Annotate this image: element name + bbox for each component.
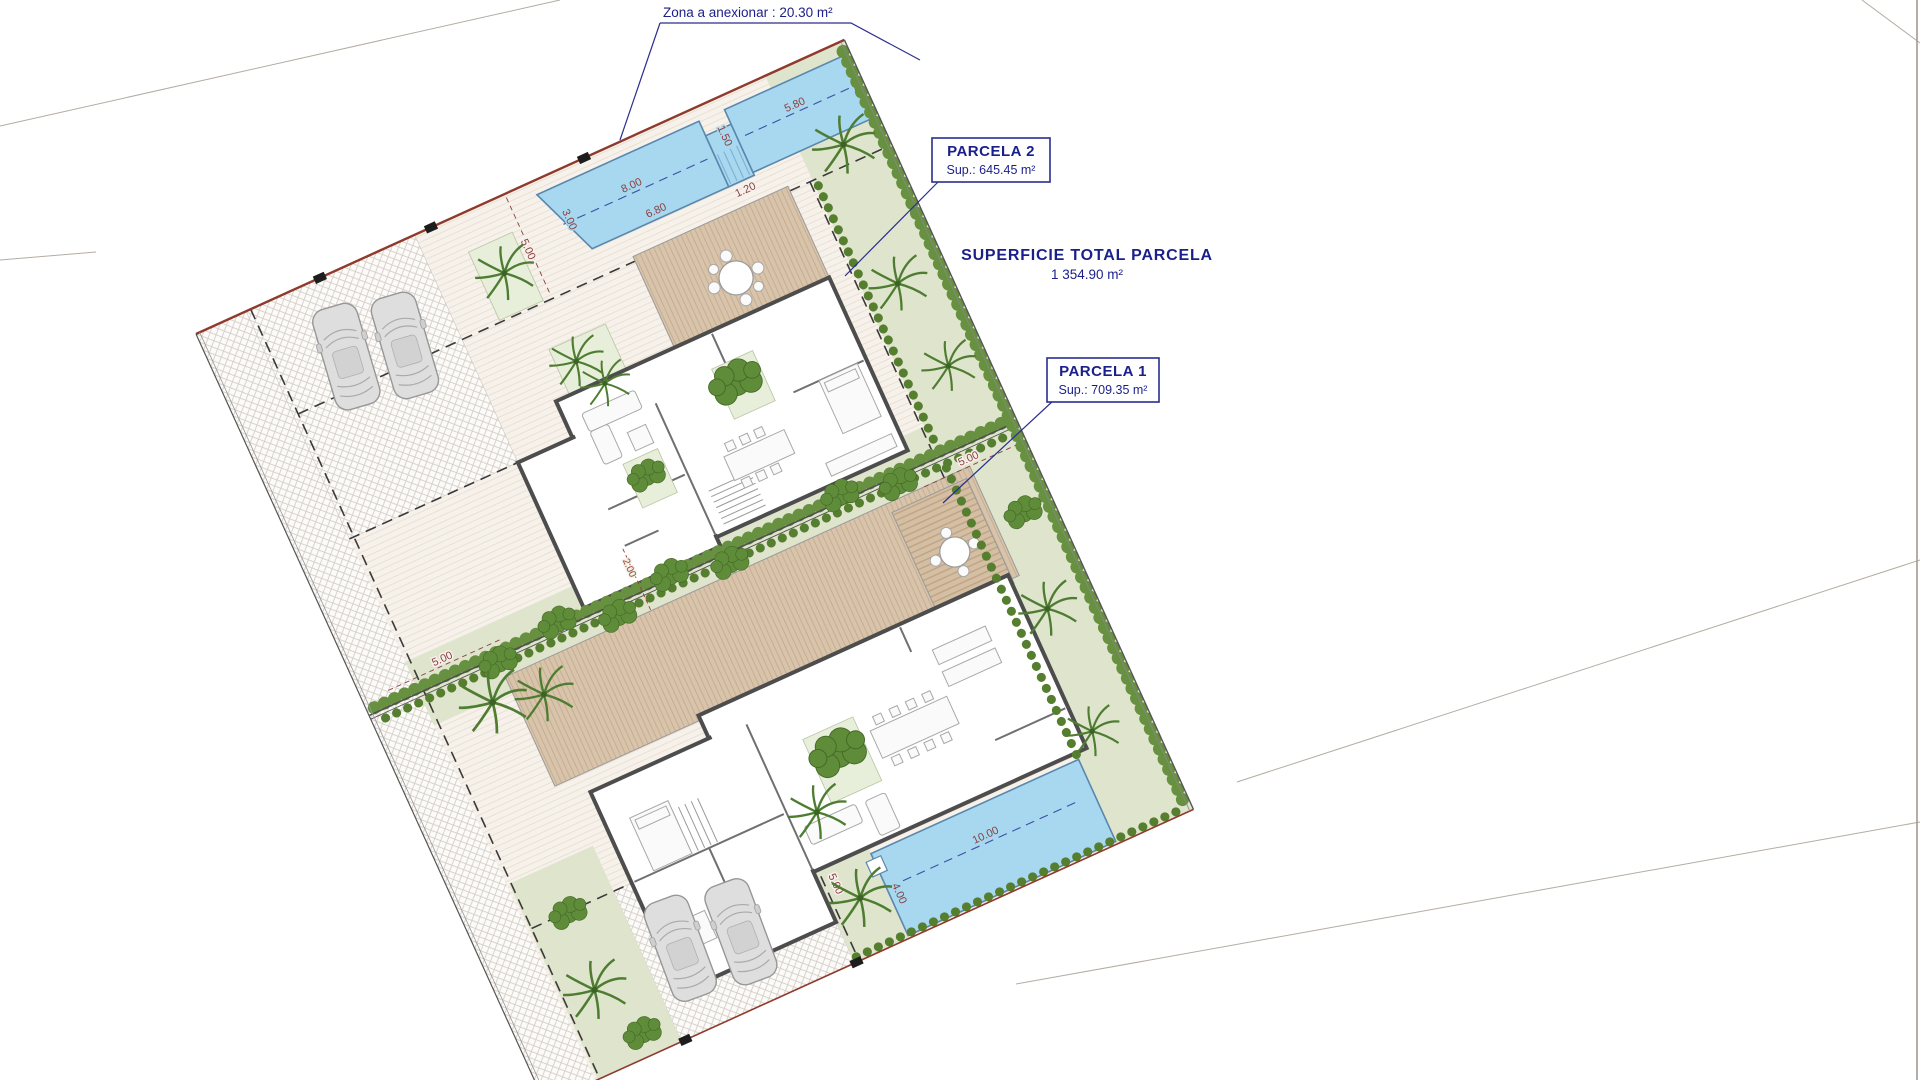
site-plan: 8.00 6.80 3.00 1.50 1.20 5.80 3.00 5.00 … <box>194 36 1195 1080</box>
zona-anexionar-label: Zona a anexionar : 20.30 m² <box>663 5 833 20</box>
parcela-1-sup: Sup.: 709.35 m² <box>1059 383 1148 397</box>
zona-leader-line <box>660 23 920 60</box>
boundary-extension-line <box>0 0 560 126</box>
site-plan-canvas: 8.00 6.80 3.00 1.50 1.20 5.80 3.00 5.00 … <box>0 0 1920 1080</box>
superficie-title: SUPERFICIE TOTAL PARCELA <box>961 247 1213 264</box>
parcela-1-title: PARCELA 1 <box>1059 363 1147 380</box>
boundary-extension-line <box>0 252 96 260</box>
boundary-extension-line <box>1237 560 1920 782</box>
parcela-2-title: PARCELA 2 <box>947 143 1035 160</box>
boundary-extension-line <box>1016 822 1920 984</box>
boundary-extension-line <box>1862 0 1920 43</box>
parcela-2-sup: Sup.: 645.45 m² <box>947 163 1036 177</box>
superficie-value: 1 354.90 m² <box>1051 267 1124 282</box>
superficie-total-label: SUPERFICIE TOTAL PARCELA 1 354.90 m² <box>961 247 1213 282</box>
zona-leader-line <box>620 23 660 140</box>
